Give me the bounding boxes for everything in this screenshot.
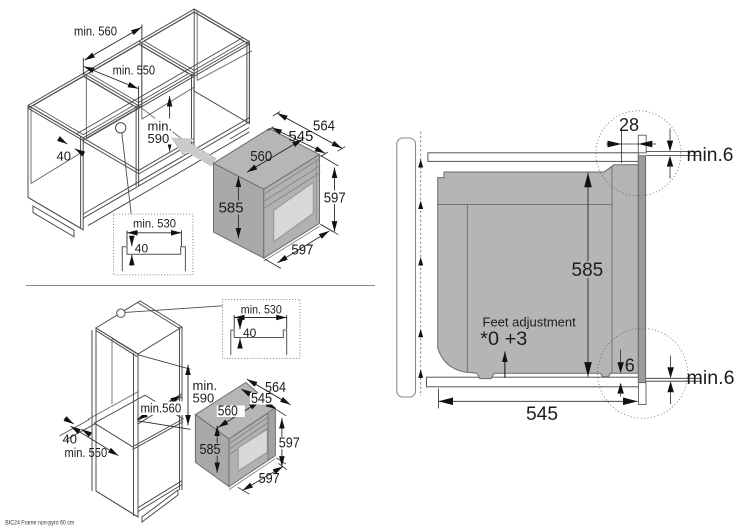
svg-text:min.560: min.560: [141, 401, 182, 416]
svg-text:Feet adjustment: Feet adjustment: [483, 314, 577, 329]
svg-text:585: 585: [572, 260, 604, 281]
svg-text:564: 564: [313, 117, 335, 134]
svg-text:40: 40: [243, 326, 257, 340]
svg-text:560: 560: [250, 148, 272, 165]
svg-text:min. 550: min. 550: [113, 63, 156, 78]
svg-text:585: 585: [200, 441, 221, 458]
svg-text:597: 597: [259, 470, 280, 487]
svg-text:6: 6: [625, 355, 635, 375]
svg-text:564: 564: [265, 379, 286, 396]
svg-text:40: 40: [135, 242, 149, 256]
svg-text:590: 590: [193, 390, 215, 405]
svg-text:560: 560: [218, 402, 238, 419]
svg-text:28: 28: [619, 115, 639, 135]
svg-text:min. 530: min. 530: [133, 217, 176, 231]
svg-text:545: 545: [526, 404, 558, 425]
svg-text:*0 +3: *0 +3: [480, 329, 527, 350]
svg-text:590: 590: [148, 131, 170, 146]
svg-text:597: 597: [279, 435, 300, 452]
svg-text:BIC24 Frame non-pyro 60 cm: BIC24 Frame non-pyro 60 cm: [5, 520, 74, 527]
svg-text:min.6: min.6: [687, 368, 735, 389]
svg-text:min. 550: min. 550: [65, 445, 108, 460]
svg-text:min. 530: min. 530: [241, 302, 282, 316]
svg-text:597: 597: [324, 189, 346, 206]
svg-text:585: 585: [219, 200, 244, 217]
svg-text:597: 597: [291, 241, 313, 258]
svg-text:min.6: min.6: [687, 145, 734, 166]
svg-text:40: 40: [57, 148, 71, 163]
svg-text:min. 560: min. 560: [74, 24, 117, 39]
